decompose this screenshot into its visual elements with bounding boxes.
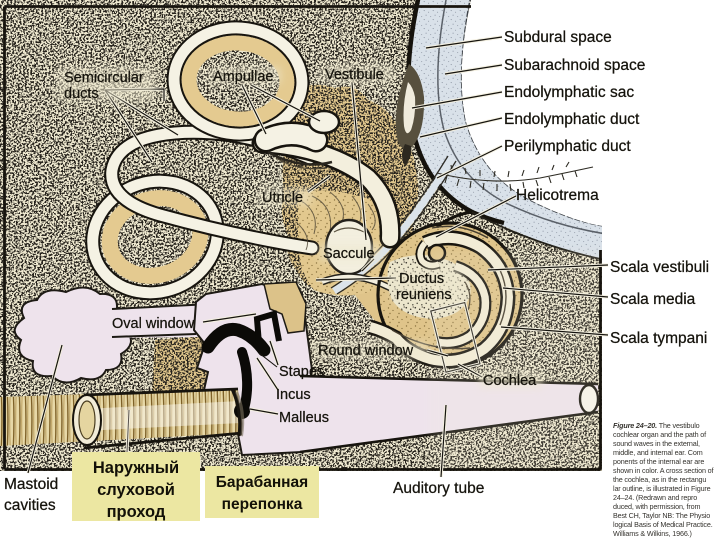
svg-text:Барабанная: Барабанная	[216, 474, 308, 491]
svg-text:ducts: ducts	[64, 86, 99, 102]
svg-text:cavities: cavities	[4, 497, 56, 514]
svg-text:Subdural space: Subdural space	[504, 29, 612, 46]
svg-text:logical Basis of Medical Pract: logical Basis of Medical Practice.	[613, 520, 713, 529]
svg-text:Endolymphatic duct: Endolymphatic duct	[504, 111, 640, 128]
svg-text:Ampullae: Ampullae	[213, 69, 273, 85]
svg-text:Scala tympani: Scala tympani	[610, 330, 707, 347]
svg-text:Scala vestibuli: Scala vestibuli	[610, 259, 709, 276]
svg-text:слуховой: слуховой	[97, 481, 175, 499]
svg-text:Endolymphatic sac: Endolymphatic sac	[504, 84, 634, 101]
svg-text:проход: проход	[107, 503, 166, 521]
svg-text:Saccule: Saccule	[323, 246, 375, 262]
svg-text:Semicircular: Semicircular	[64, 70, 144, 86]
svg-text:Vestibule: Vestibule	[325, 67, 384, 83]
svg-text:Incus: Incus	[276, 387, 311, 403]
svg-text:shown in color. A cross sectio: shown in color. A cross section of	[613, 466, 714, 475]
svg-text:Malleus: Malleus	[279, 410, 329, 426]
svg-text:Mastoid: Mastoid	[4, 476, 58, 493]
svg-text:Utricle: Utricle	[262, 190, 303, 206]
svg-text:ponents of the internal ear ar: ponents of the internal ear are	[613, 457, 704, 466]
svg-text:Helicotrema: Helicotrema	[516, 187, 599, 204]
svg-text:lar outline, is illustrated in: lar outline, is illustrated in Figure	[613, 484, 711, 493]
svg-text:Scala media: Scala media	[610, 291, 696, 308]
svg-text:Ductus: Ductus	[399, 271, 444, 287]
svg-text:перепонка: перепонка	[222, 496, 303, 513]
svg-text:cochlear organ and the path of: cochlear organ and the path of	[613, 430, 706, 439]
svg-text:24–24. (Redrawn and repro: 24–24. (Redrawn and repro	[613, 493, 697, 502]
svg-text:Auditory tube: Auditory tube	[393, 480, 484, 497]
svg-text:Williams & Wilkins, 1966.): Williams & Wilkins, 1966.)	[613, 529, 692, 538]
svg-text:Round window: Round window	[318, 343, 414, 359]
svg-text:Best CH, Taylor NB: The Physio: Best CH, Taylor NB: The Physio	[613, 511, 710, 520]
svg-text:Oval window: Oval window	[112, 316, 195, 332]
svg-text:sound waves in the external,: sound waves in the external,	[613, 439, 700, 448]
svg-text:middle, and internal ear. Com: middle, and internal ear. Com	[613, 448, 703, 457]
svg-text:Stapes: Stapes	[279, 364, 324, 380]
svg-text:Наружный: Наружный	[93, 459, 179, 477]
svg-text:Cochlea: Cochlea	[483, 373, 537, 389]
svg-text:Subarachnoid space: Subarachnoid space	[504, 57, 645, 74]
svg-text:Figure 24–20. The vestibulo: Figure 24–20. The vestibulo	[613, 421, 700, 430]
svg-text:duced, with permission, from: duced, with permission, from	[613, 502, 700, 511]
svg-text:reuniens: reuniens	[396, 287, 452, 303]
svg-text:Perilymphatic duct: Perilymphatic duct	[504, 138, 631, 155]
svg-text:the cochlea, as in the rectang: the cochlea, as in the rectangu	[613, 475, 706, 484]
